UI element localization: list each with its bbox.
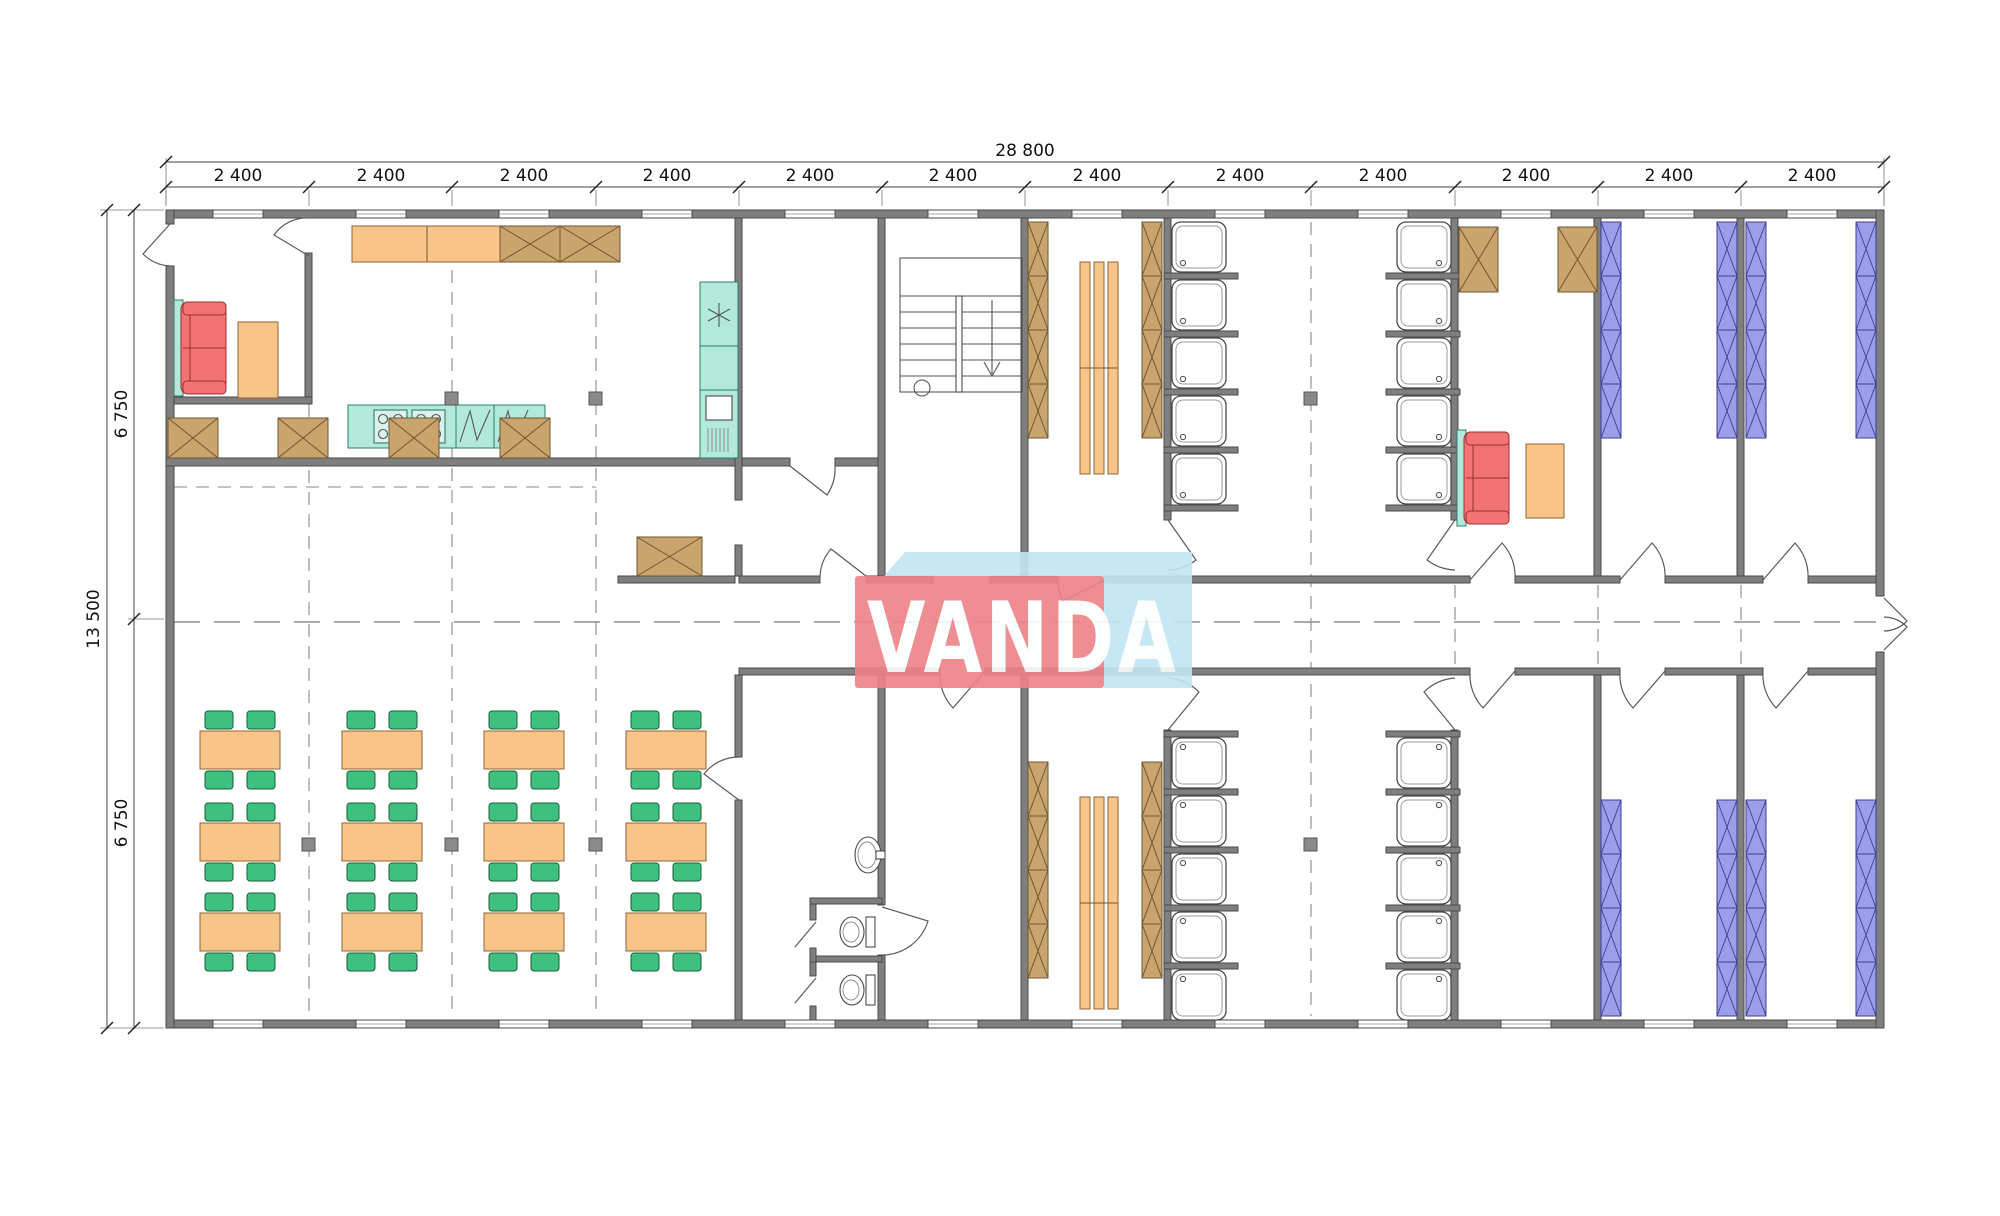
door-swing-exit	[1884, 598, 1907, 631]
dim-bay: 2 400	[1359, 166, 1408, 186]
window	[213, 1020, 263, 1028]
window	[785, 1020, 835, 1028]
door-swing	[1424, 678, 1455, 730]
door-swing	[1763, 671, 1808, 708]
door-swing-entrance	[143, 224, 170, 266]
wall-bay4	[735, 545, 742, 576]
stair-stringer	[956, 296, 962, 392]
toilet	[840, 917, 875, 947]
corridor-wall-south	[1665, 668, 1763, 675]
shower-stall-column	[1397, 222, 1451, 504]
bunk-bed-run	[1746, 222, 1766, 438]
wc-stall-front	[810, 962, 816, 976]
locker-run	[1142, 222, 1162, 438]
dim-bay: 2 400	[357, 166, 406, 186]
wc-stall-front	[810, 904, 816, 920]
dim-bay: 2 400	[1788, 166, 1837, 186]
kitchen-counter	[352, 226, 500, 262]
dining-table-set	[342, 711, 422, 789]
window	[1072, 210, 1122, 218]
corridor-wall-north	[739, 576, 820, 583]
exterior-wall-right	[1876, 210, 1884, 596]
dim-height-segment: 6 750	[112, 390, 132, 439]
door-swing	[274, 218, 309, 256]
window	[928, 1020, 978, 1028]
dim-overall-width: 28 800	[995, 141, 1054, 161]
dim-bay: 2 400	[786, 166, 835, 186]
door-swing	[820, 549, 866, 576]
refrigerator-tall-unit	[700, 282, 738, 458]
dim-bay: 2 400	[500, 166, 549, 186]
shower-stall-column	[1397, 738, 1451, 1020]
wall-changing-shower-upper	[1164, 218, 1171, 520]
wc-stall-front	[810, 1006, 816, 1020]
window	[499, 1020, 549, 1028]
door-swing	[1470, 671, 1515, 708]
wardrobe-cabinet	[500, 226, 560, 262]
locker-run	[1142, 762, 1162, 978]
window	[642, 1020, 692, 1028]
corridor-wall-south	[1515, 668, 1620, 675]
dim-height-segment: 6 750	[112, 799, 132, 848]
wall-bedroom-lower-1	[1594, 675, 1601, 1020]
dining-table-set	[626, 893, 706, 971]
wall-bedroom-upper-2	[1737, 218, 1744, 576]
bunk-bed-run	[1601, 222, 1621, 438]
dim-overall-height: 13 500	[84, 589, 104, 648]
changing-bench	[1080, 262, 1118, 474]
window	[356, 1020, 406, 1028]
door-swing-exit	[1884, 617, 1907, 650]
wardrobe-cabinet	[1459, 227, 1498, 292]
staircase	[900, 258, 1022, 396]
window	[928, 210, 978, 218]
dining-table-set	[342, 893, 422, 971]
window	[1072, 1020, 1122, 1028]
wall-wc-west	[735, 800, 742, 1020]
shower-stall-column	[1172, 738, 1226, 1020]
window	[1644, 1020, 1694, 1028]
shower-room-upper	[1164, 222, 1460, 511]
bunk-bed-run	[1717, 222, 1737, 438]
corridor-wall-south	[1808, 668, 1876, 675]
stair-direction-arrow	[984, 300, 1000, 376]
wc-stall-door	[795, 978, 816, 1003]
sink-unit	[706, 396, 732, 420]
door-swing	[1763, 543, 1808, 580]
corridor-wall-north	[1515, 576, 1620, 583]
wc-group	[795, 837, 885, 1005]
shower-room-lower	[1164, 731, 1460, 1020]
bunk-bed-run	[1856, 222, 1876, 438]
sofa	[174, 300, 226, 396]
wall-wc-east	[878, 668, 885, 905]
dim-bay: 2 400	[214, 166, 263, 186]
wc-stall-partition	[810, 956, 882, 962]
window	[213, 210, 263, 218]
dim-bay: 2 400	[929, 166, 978, 186]
door-swing	[1620, 543, 1665, 580]
dining-table-set	[484, 893, 564, 971]
wardrobe-cabinet	[278, 418, 328, 458]
corridor-wall-north	[1808, 576, 1876, 583]
door-swing	[1427, 520, 1455, 570]
window	[1358, 210, 1408, 218]
dim-bay: 2 400	[1073, 166, 1122, 186]
door-swing	[882, 907, 928, 955]
window	[1215, 210, 1265, 218]
bunk-bed-run	[1717, 800, 1737, 1016]
door-swing	[1470, 543, 1515, 580]
dim-bay: 2 400	[1645, 166, 1694, 186]
vanda-watermark: VANDA	[855, 552, 1192, 696]
dining-table-set	[626, 803, 706, 881]
wall-changing-shower-lower	[1164, 730, 1171, 1020]
toilet	[840, 975, 875, 1005]
dining-table-set	[342, 803, 422, 881]
wall-lobby-east	[1021, 668, 1028, 1020]
dining-table-set	[484, 803, 564, 881]
changing-room-lower	[1028, 762, 1162, 1009]
dining-table-set	[200, 803, 280, 881]
wardrobe-cabinet	[560, 226, 620, 262]
locker-run	[1028, 222, 1048, 438]
window	[1787, 210, 1837, 218]
window	[356, 210, 406, 218]
bunk-bed-run	[1746, 800, 1766, 1016]
wc-stall-door	[795, 922, 816, 947]
bunk-bed-run	[1856, 800, 1876, 1016]
changing-bench	[1080, 797, 1118, 1009]
wardrobe-cabinet	[637, 537, 702, 576]
wardrobe-cabinet	[389, 418, 439, 458]
coffee-table	[238, 322, 278, 398]
window	[1787, 1020, 1837, 1028]
door-swing	[1620, 671, 1665, 708]
window	[1501, 210, 1551, 218]
window	[499, 210, 549, 218]
locker-run	[1028, 762, 1048, 978]
dim-bay: 2 400	[1216, 166, 1265, 186]
exterior-wall-left	[166, 210, 174, 224]
wc-stall-partition	[810, 898, 882, 904]
window	[785, 210, 835, 218]
sofa	[1457, 430, 1509, 526]
wardrobe-cabinet	[500, 418, 550, 458]
window	[642, 210, 692, 218]
corridor-wall-north	[618, 576, 735, 583]
window	[1215, 1020, 1265, 1028]
floor-plan-canvas: 28 800 2 400 2 400 2 400 2 400 2 400 2 4…	[0, 0, 2000, 1216]
wall-kitchen-south	[835, 458, 882, 466]
wall-bedroom-lower-2	[1737, 675, 1744, 1020]
dining-table-set	[484, 711, 564, 789]
dining-table-set	[200, 893, 280, 971]
wall-wc-east	[878, 955, 885, 1020]
bunk-bed-run	[1601, 800, 1621, 1016]
wall-wc-west	[735, 675, 742, 757]
exterior-wall-left	[166, 266, 174, 1028]
corridor-wall-north	[1665, 576, 1763, 583]
wall-shower-room-lower	[1451, 730, 1458, 1020]
coffee-table	[1526, 444, 1564, 518]
wall-kitchen-south	[166, 458, 790, 466]
window	[1644, 210, 1694, 218]
stair-start-marker	[914, 380, 930, 396]
wall-sofa-room	[305, 253, 312, 404]
wall-stair-west	[878, 218, 885, 583]
changing-room-upper	[1028, 222, 1162, 474]
exterior-wall-top	[166, 210, 1884, 218]
exterior-wall-bottom	[166, 1020, 1884, 1028]
window	[1358, 1020, 1408, 1028]
door-swing	[790, 466, 835, 495]
dim-bay: 2 400	[1502, 166, 1551, 186]
floor-plan-drawing: 28 800 2 400 2 400 2 400 2 400 2 400 2 4…	[0, 0, 2000, 1216]
wardrobe-cabinet	[168, 418, 218, 458]
exterior-wall-right	[1876, 652, 1884, 1028]
lounge-group	[1457, 227, 1597, 526]
wardrobe-cabinet	[1558, 227, 1597, 292]
window	[1501, 1020, 1551, 1028]
dining-table-set	[626, 711, 706, 789]
logo-text: VANDA	[867, 582, 1179, 696]
door-swing	[704, 757, 739, 800]
dining-table-set	[200, 711, 280, 789]
dim-bay: 2 400	[643, 166, 692, 186]
shower-stall-column	[1172, 222, 1226, 504]
wc-stall-front	[810, 948, 816, 962]
